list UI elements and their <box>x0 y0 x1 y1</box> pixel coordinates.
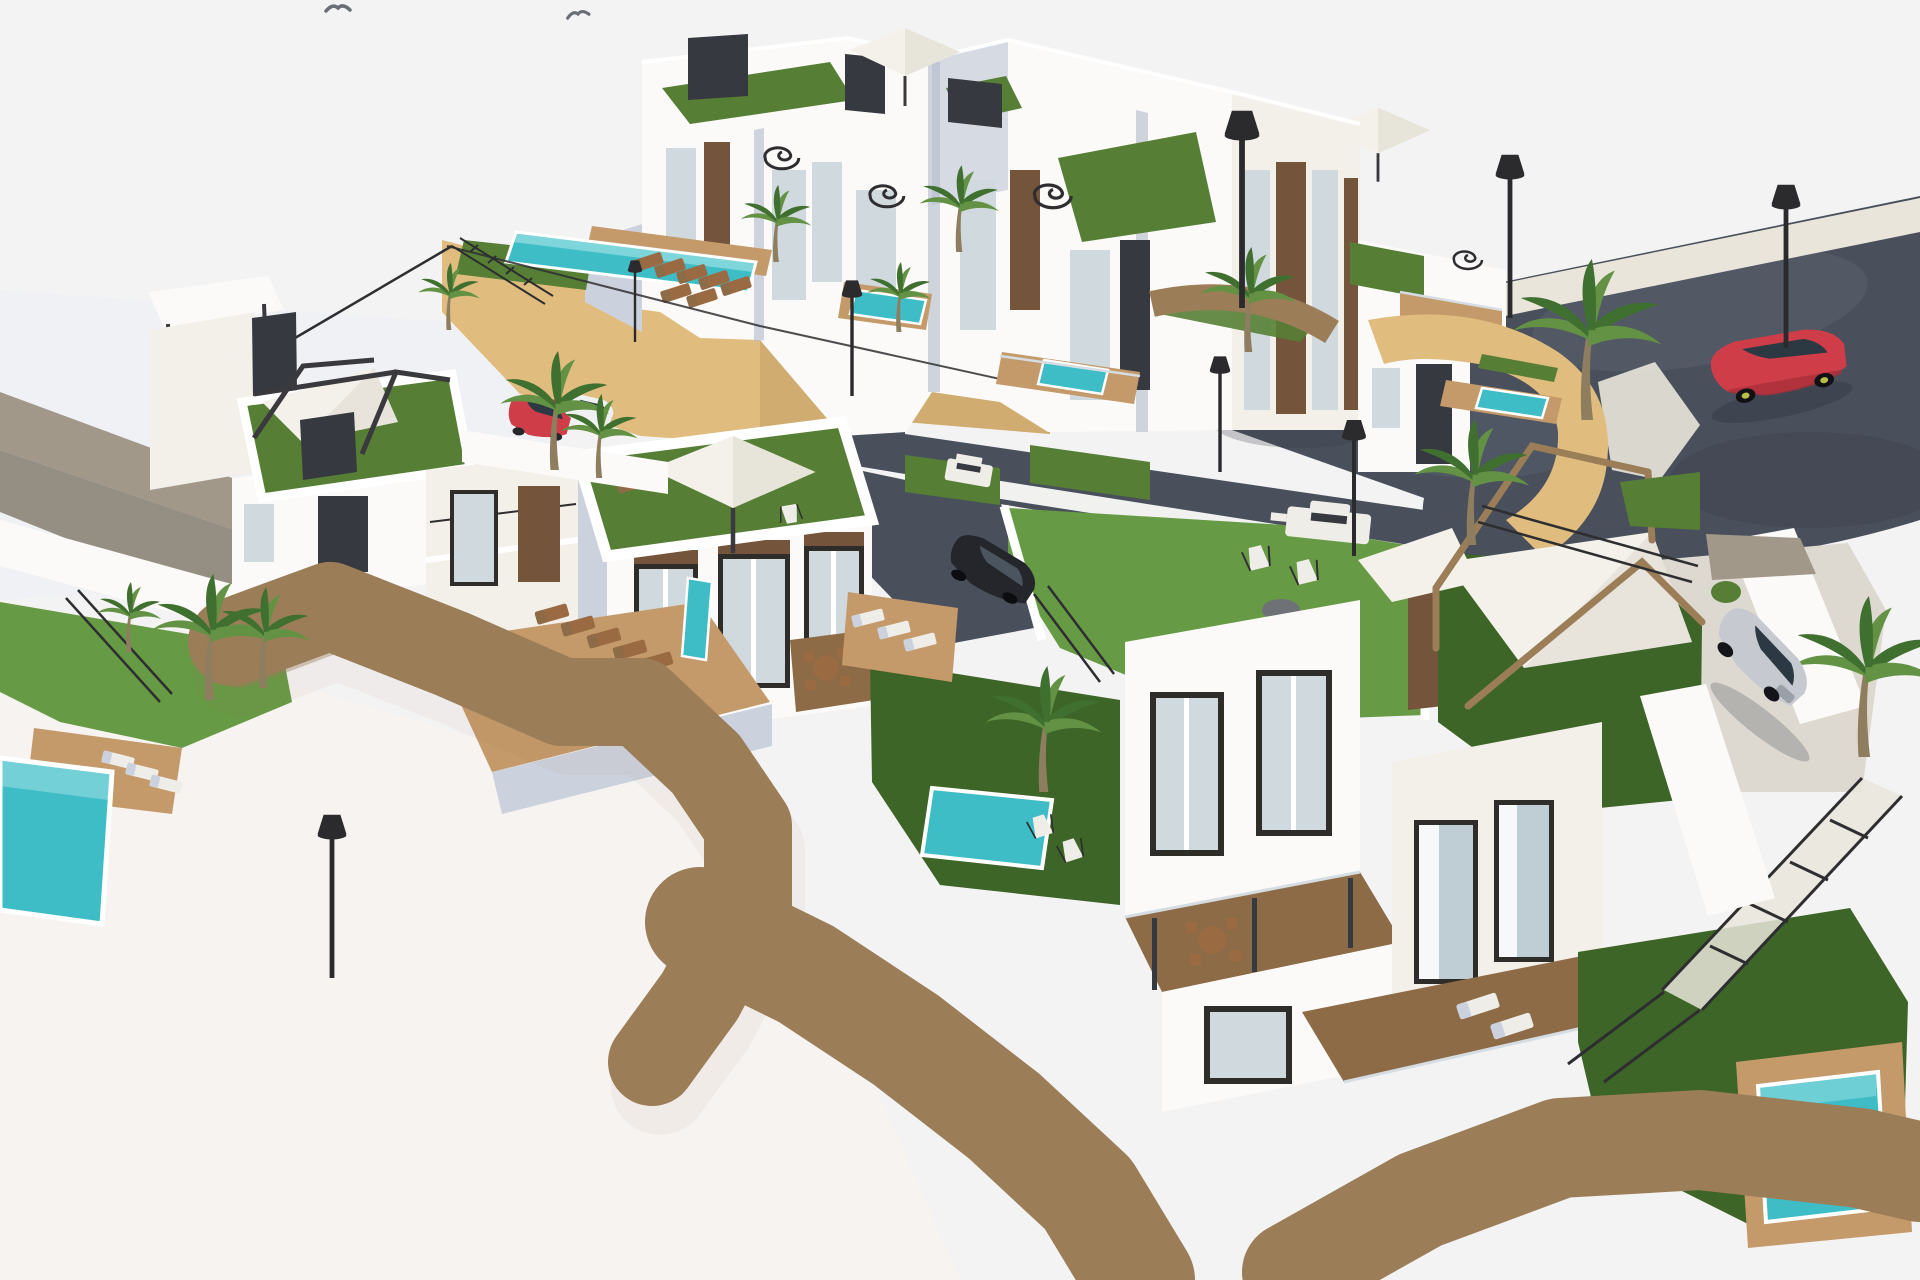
window <box>1210 1012 1286 1078</box>
rooftop-unit <box>688 34 748 100</box>
brown-door <box>518 486 560 582</box>
architectural-render: { "scene": { "type": "architectural-3d-r… <box>0 0 1920 1280</box>
terrace-post <box>1348 878 1353 948</box>
solar-panel <box>948 78 1002 128</box>
rooftop-unit <box>300 412 357 480</box>
shrub <box>1711 581 1741 603</box>
window <box>1372 368 1400 428</box>
window-dark <box>318 496 368 572</box>
window <box>244 504 274 562</box>
lawn-patch <box>1620 472 1700 530</box>
window <box>454 494 494 582</box>
entry-door <box>1416 364 1452 464</box>
facade-joint <box>928 60 940 392</box>
terrace-post <box>1252 898 1257 972</box>
stone-planter <box>1706 534 1816 580</box>
facade-joint <box>754 128 764 342</box>
terrace-post <box>1152 918 1157 990</box>
